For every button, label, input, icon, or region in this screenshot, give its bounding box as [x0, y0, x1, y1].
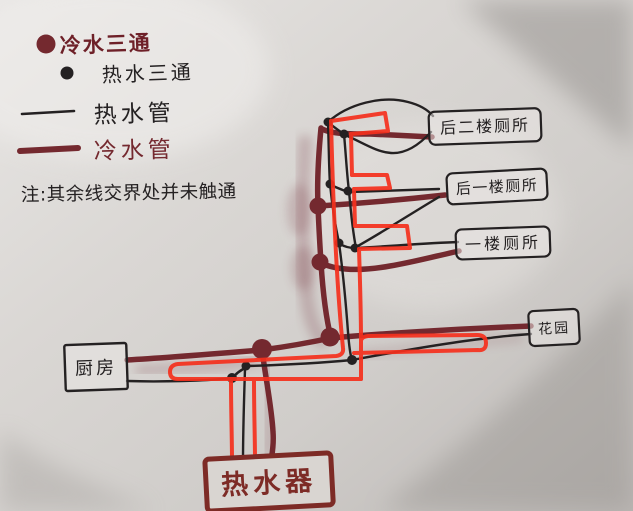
- diagram-canvas: 后二楼厕所 后一楼厕所 一楼厕所 花园 厨房 热水器 冷水三通 热水三通 热水管: [0, 0, 633, 511]
- legend-cold-tee-dot: [37, 35, 56, 54]
- hot-tee-dot: [340, 130, 349, 139]
- legend-cold-pipe-label: 冷水管: [93, 137, 175, 165]
- hot-tee-dot: [347, 355, 357, 365]
- hot-tee-dot: [242, 362, 251, 371]
- cold-tee-dot: [252, 339, 272, 359]
- legend-hot-tee-dot: [61, 67, 74, 80]
- box-kitchen-label: 厨房: [75, 357, 118, 379]
- annotation-heater-drop-right: [254, 380, 255, 461]
- plumbing-sketch-photo: 后二楼厕所 后一楼厕所 一楼厕所 花园 厨房 热水器 冷水三通 热水三通 热水管: [0, 0, 633, 511]
- cold-tee-dot: [312, 254, 329, 271]
- cold-tee-dot: [310, 198, 327, 215]
- legend-cold-tee-label: 冷水三通: [59, 31, 152, 58]
- box-heater-label: 热水器: [220, 466, 317, 502]
- box-garden-label: 花园: [538, 320, 571, 338]
- hot-tee-dot: [344, 187, 353, 196]
- legend-hot-tee-label: 热水三通: [101, 60, 194, 87]
- legend-note: 注:其余线交界处并未触通: [21, 181, 237, 206]
- box-toilet-2f-rear-label: 后二楼厕所: [440, 115, 531, 137]
- annotation-heater-drop-left: [231, 381, 232, 461]
- box-toilet-1f-label: 一楼厕所: [465, 233, 542, 255]
- legend-cold-pipe-sample: [20, 148, 78, 151]
- legend-hot-pipe-label: 热水管: [93, 100, 175, 129]
- cold-tee-dot: [321, 328, 340, 347]
